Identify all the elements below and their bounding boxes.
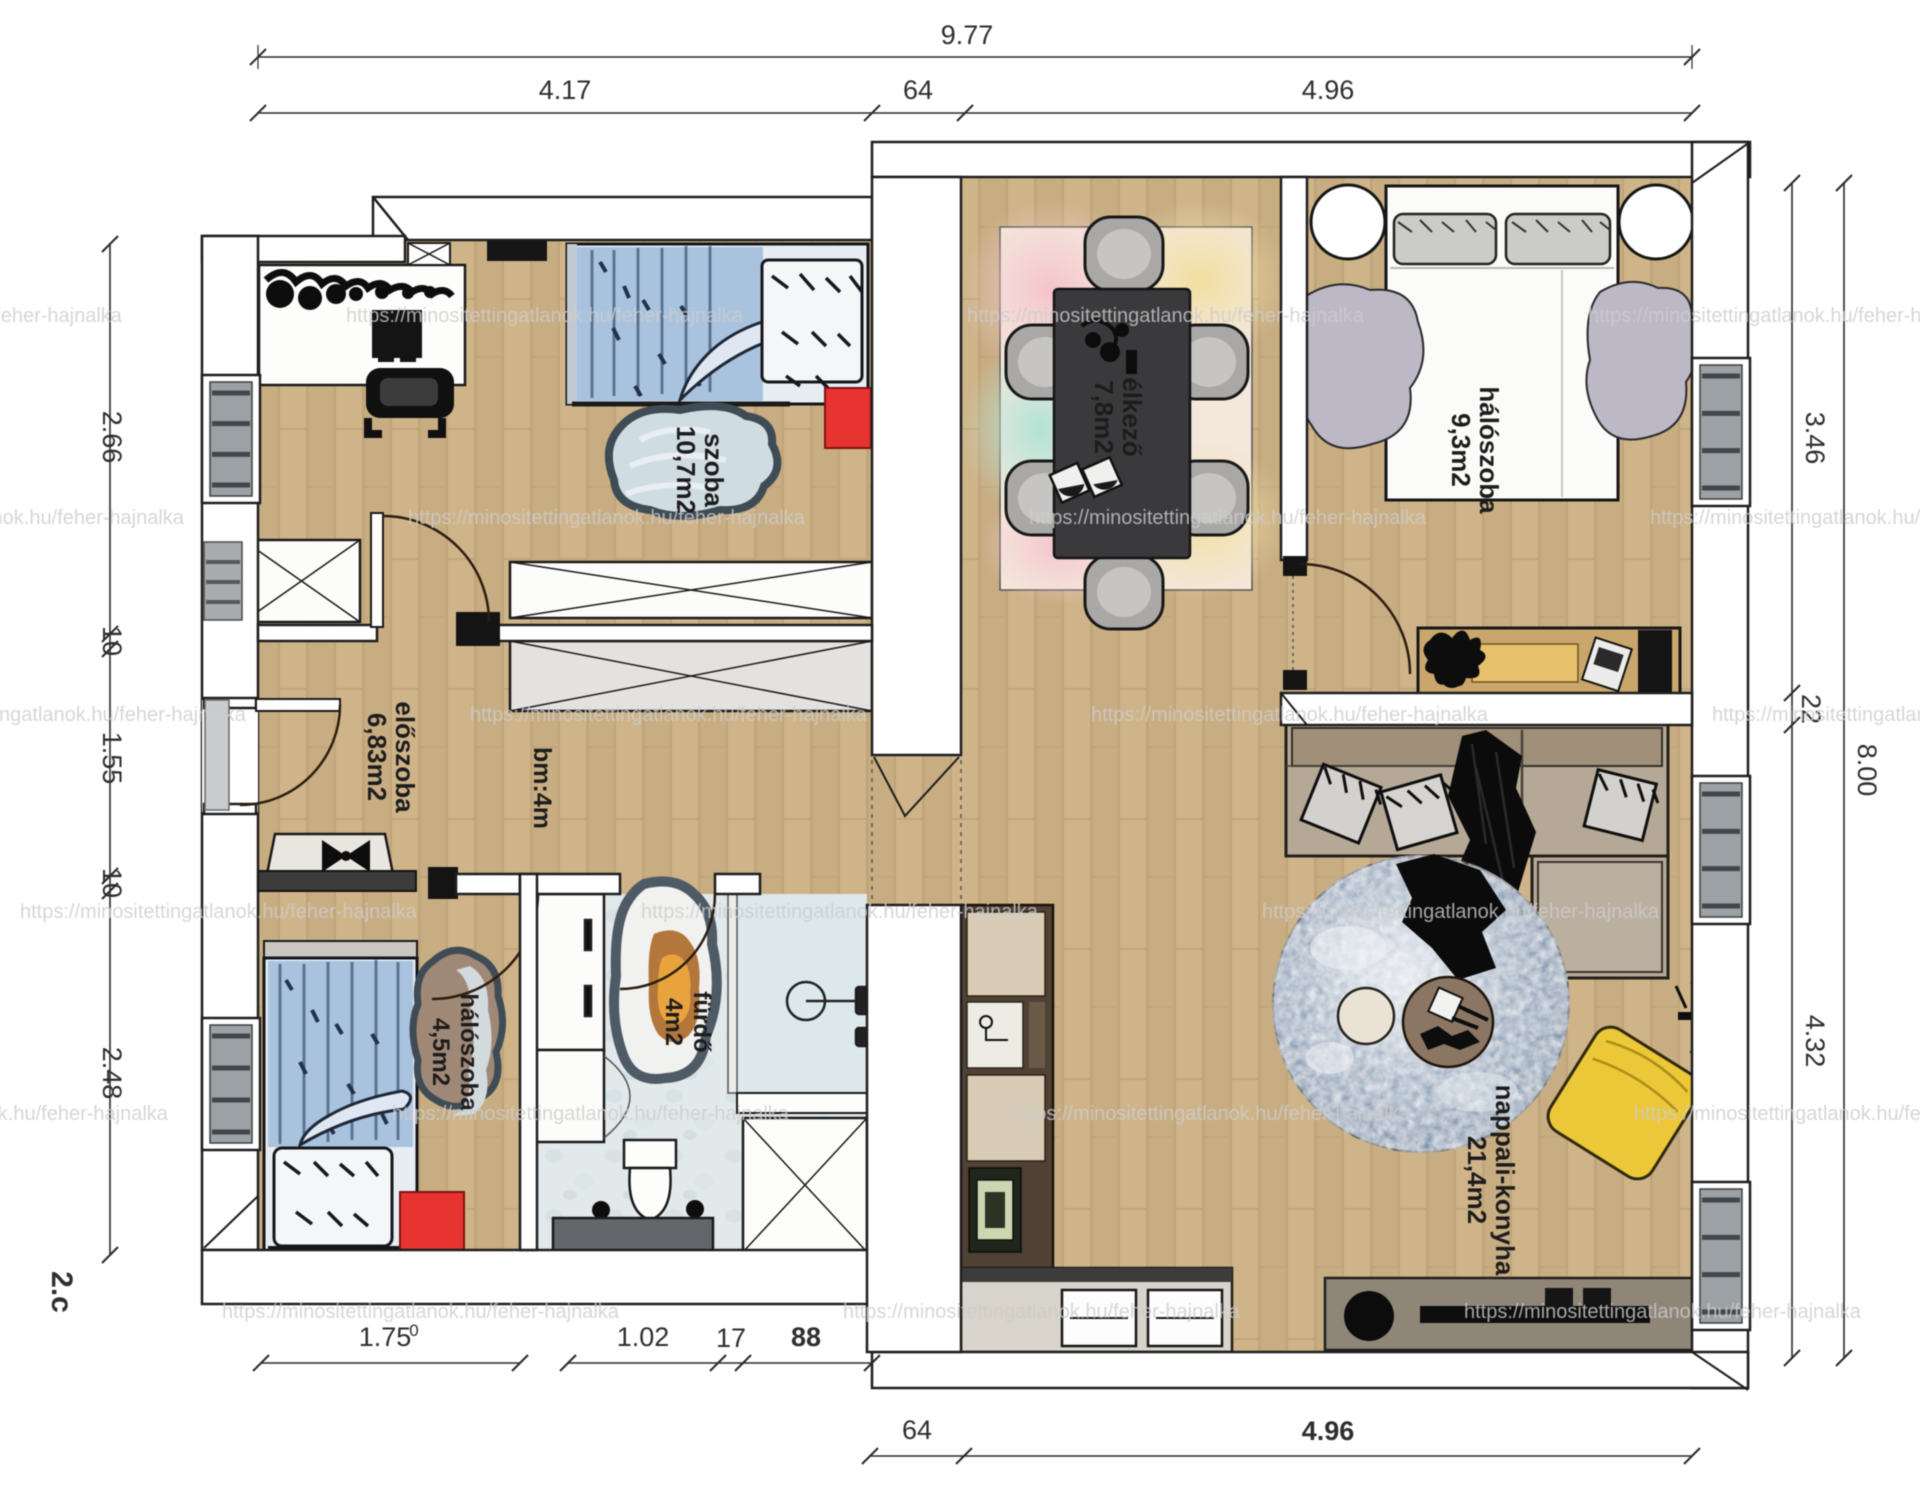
svg-text:https://minositettingatlanok.h: https://minositettingatlanok.hu/feher-ha… [0,704,247,726]
svg-text:https://minositettingatlanok.h: https://minositettingatlanok.hu/feher-ha… [1091,704,1489,726]
svg-text:https://minositettingatlanok.h: https://minositettingatlanok.hu/feher-ha… [0,305,123,327]
svg-text:0: 0 [409,1321,418,1340]
svg-text:https://minositettingatlanok.h: https://minositettingatlanok.hu/feher-ha… [20,901,418,923]
svg-text:https://minositettingatlanok.h: https://minositettingatlanok.hu/feher-ha… [0,507,185,529]
svg-text:88: 88 [791,1322,821,1352]
svg-text:élkező: élkező [1117,377,1147,457]
svg-text:7,8m2: 7,8m2 [1089,380,1119,454]
svg-text:4.17: 4.17 [539,75,592,105]
svg-text:https://minositettingatlanok.h: https://minositettingatlanok.hu/feher-ha… [408,507,806,529]
svg-text:17: 17 [716,1323,746,1353]
svg-text:nappali-konyha: nappali-konyha [1490,1085,1520,1276]
svg-text:1.75: 1.75 [359,1322,412,1352]
svg-text:4.96: 4.96 [1302,1416,1355,1446]
svg-text:https://minositettingatlanok.h: https://minositettingatlanok.hu/feher-ha… [843,1301,1241,1323]
svg-text:https://minositettingatlanok.h: https://minositettingatlanok.hu/feher-ha… [1588,305,1920,327]
svg-text:64: 64 [903,75,933,105]
svg-text:https://minositettingatlanok.h: https://minositettingatlanok.hu/feher-ha… [0,1103,169,1125]
svg-text:10: 10 [97,626,127,656]
svg-text:https://minositettingatlanok.h: https://minositettingatlanok.hu/feher-ha… [1712,704,1920,726]
svg-text:9,3m2: 9,3m2 [1446,413,1476,487]
svg-text:https://minositettingatlanok.h: https://minositettingatlanok.hu/feher-ha… [392,1103,790,1125]
svg-text:https://minositettingatlanok.h: https://minositettingatlanok.hu/feher-ha… [1029,507,1427,529]
svg-text:szoba: szoba [699,433,729,507]
svg-text:https://minositettingatlanok.h: https://minositettingatlanok.hu/feher-ha… [967,305,1365,327]
svg-text:4m2: 4m2 [660,998,687,1046]
svg-text:hálószoba: hálószoba [1474,386,1504,514]
svg-text:8.00: 8.00 [1852,744,1882,797]
svg-text:fürdő: fürdő [688,991,715,1052]
svg-text:9.77: 9.77 [941,20,994,50]
svg-text:10: 10 [97,868,127,898]
svg-text:https://minositettingatlanok.h: https://minositettingatlanok.hu/feher-ha… [346,305,744,327]
svg-text:előszoba: előszoba [390,701,420,813]
svg-text:1.02: 1.02 [617,1322,670,1352]
svg-text:https://minositettingatlanok.h: https://minositettingatlanok.hu/feher-ha… [641,901,1039,923]
svg-text:4.96: 4.96 [1302,75,1355,105]
svg-text:3.46: 3.46 [1800,412,1830,465]
svg-text:hálószoba: hálószoba [455,993,482,1111]
svg-text:https://minositettingatlanok.h: https://minositettingatlanok.hu/feher-ha… [1464,1301,1862,1323]
svg-text:2.c: 2.c [45,1271,78,1313]
svg-text:21,4m2: 21,4m2 [1462,1136,1492,1224]
svg-text:https://minositettingatlanok.h: https://minositettingatlanok.hu/feher-ha… [1013,1103,1411,1125]
svg-text:1.55: 1.55 [97,732,127,785]
svg-text:https://minositettingatlanok.h: https://minositettingatlanok.hu/feher-ha… [1262,901,1660,923]
svg-text:https://minositettingatlanok.h: https://minositettingatlanok.hu/feher-ha… [470,704,868,726]
svg-text:64: 64 [902,1415,932,1445]
svg-text:https://minositettingatlanok.h: https://minositettingatlanok.hu/feher-ha… [1634,1103,1920,1125]
svg-text:6,83m2: 6,83m2 [362,713,392,801]
svg-text:2.48: 2.48 [97,1047,127,1100]
svg-text:4.32: 4.32 [1800,1015,1830,1068]
svg-text:4,5m2: 4,5m2 [427,1018,454,1086]
svg-text:2.66: 2.66 [97,411,127,464]
svg-text:10,7m2: 10,7m2 [671,426,701,514]
svg-text:bm:4m: bm:4m [528,747,556,829]
svg-text:https://minositettingatlanok.h: https://minositettingatlanok.hu/feher-ha… [1650,507,1920,529]
svg-text:https://minositettingatlanok.h: https://minositettingatlanok.hu/feher-ha… [222,1301,620,1323]
